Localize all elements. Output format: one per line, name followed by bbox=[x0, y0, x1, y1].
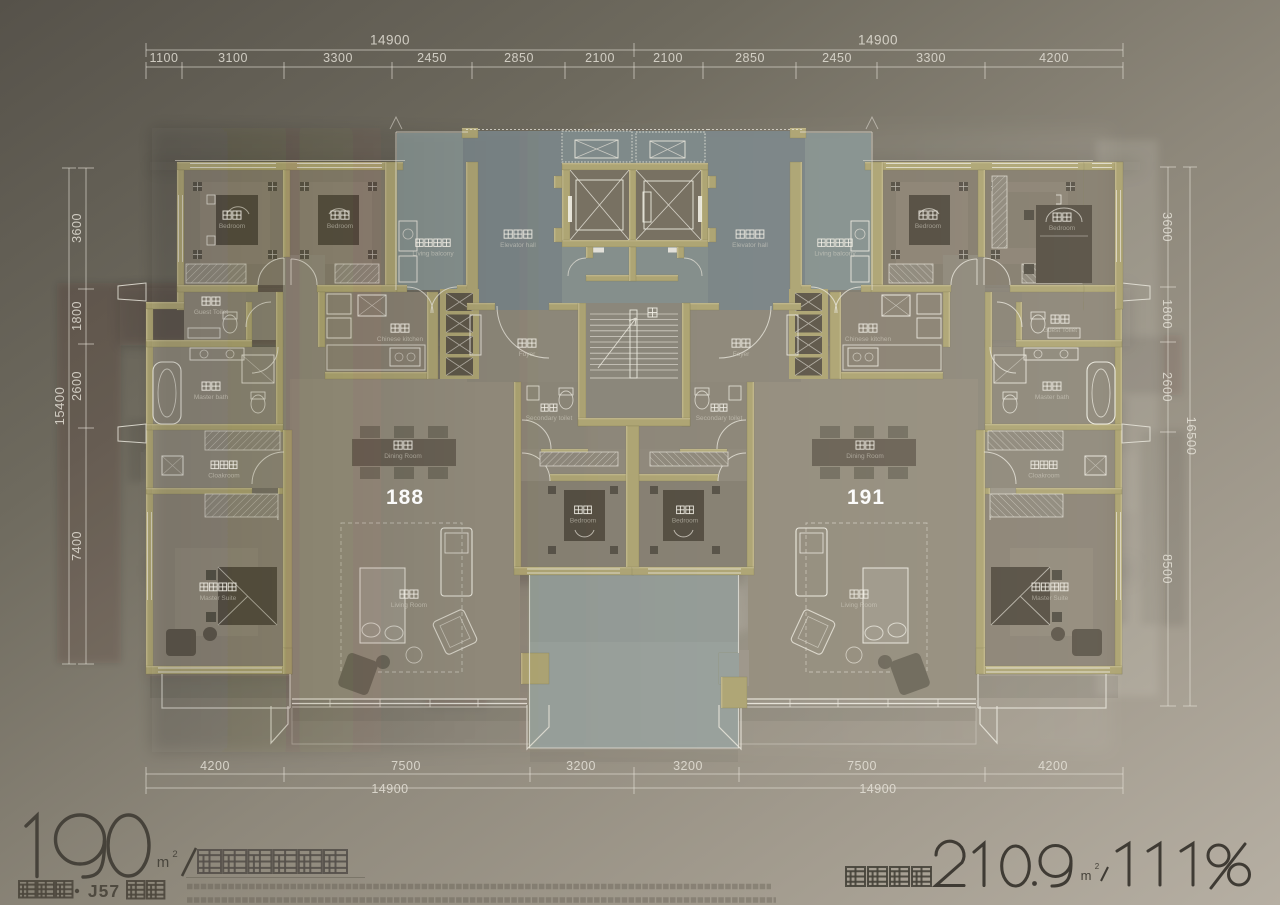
svg-text:Living balcony: Living balcony bbox=[814, 250, 856, 257]
svg-text:Living Room: Living Room bbox=[391, 602, 427, 609]
svg-text:Guest Toilet: Guest Toilet bbox=[194, 309, 228, 316]
svg-text:4200: 4200 bbox=[1038, 759, 1068, 773]
svg-text:Bedroom: Bedroom bbox=[915, 223, 941, 230]
svg-text:Bedroom: Bedroom bbox=[219, 223, 245, 230]
svg-text:3600: 3600 bbox=[1160, 212, 1174, 242]
svg-text:1100: 1100 bbox=[150, 51, 179, 65]
svg-text:m: m bbox=[1081, 868, 1092, 883]
svg-text:Cloakroom: Cloakroom bbox=[1028, 473, 1059, 480]
svg-text:Bedroom: Bedroom bbox=[570, 518, 596, 525]
svg-text:Dining Room: Dining Room bbox=[846, 453, 884, 460]
svg-text:Cloakroom: Cloakroom bbox=[208, 473, 239, 480]
svg-text:7400: 7400 bbox=[70, 531, 84, 561]
svg-text:Master bath: Master bath bbox=[1035, 394, 1070, 401]
svg-text:Guest Toilet: Guest Toilet bbox=[1043, 327, 1077, 334]
svg-text:3200: 3200 bbox=[673, 759, 703, 773]
svg-text:Bedroom: Bedroom bbox=[672, 518, 698, 525]
svg-text:14900: 14900 bbox=[371, 782, 408, 796]
svg-text:1800: 1800 bbox=[1160, 299, 1174, 329]
svg-text:4200: 4200 bbox=[1039, 51, 1069, 65]
svg-text:Elevator hall: Elevator hall bbox=[500, 242, 536, 249]
svg-text:Master bath: Master bath bbox=[194, 394, 229, 401]
svg-text:3200: 3200 bbox=[566, 759, 596, 773]
svg-text:2100: 2100 bbox=[585, 51, 615, 65]
svg-text:2450: 2450 bbox=[417, 51, 447, 65]
svg-text:2100: 2100 bbox=[653, 51, 683, 65]
svg-text:15400: 15400 bbox=[52, 387, 67, 426]
svg-text:16500: 16500 bbox=[1184, 417, 1199, 456]
svg-text:14900: 14900 bbox=[370, 33, 410, 48]
svg-text:3300: 3300 bbox=[916, 51, 946, 65]
svg-text:Master Suite: Master Suite bbox=[1032, 595, 1069, 602]
svg-text:3600: 3600 bbox=[70, 213, 84, 243]
svg-text:Master Suite: Master Suite bbox=[200, 595, 237, 602]
svg-text:4200: 4200 bbox=[200, 759, 230, 773]
svg-text:1800: 1800 bbox=[70, 301, 84, 331]
svg-text:14900: 14900 bbox=[859, 782, 896, 796]
svg-text:J57: J57 bbox=[88, 881, 120, 901]
svg-text:3100: 3100 bbox=[218, 51, 248, 65]
svg-text:191: 191 bbox=[847, 486, 885, 509]
svg-text:2850: 2850 bbox=[735, 51, 765, 65]
svg-text:Elevator hall: Elevator hall bbox=[732, 242, 768, 249]
svg-text:2600: 2600 bbox=[70, 371, 84, 401]
svg-text:3300: 3300 bbox=[323, 51, 353, 65]
svg-text:Dining Room: Dining Room bbox=[384, 453, 422, 460]
svg-text:2: 2 bbox=[1095, 862, 1100, 871]
svg-text:Bedroom: Bedroom bbox=[327, 223, 353, 230]
svg-text:Living balcony: Living balcony bbox=[412, 250, 454, 257]
svg-text:Bedroom: Bedroom bbox=[1049, 225, 1075, 232]
svg-text:Secondary toilet: Secondary toilet bbox=[696, 415, 743, 422]
svg-text:Living Room: Living Room bbox=[841, 602, 877, 609]
svg-text:Chinese kitchen: Chinese kitchen bbox=[377, 336, 424, 343]
svg-text:Foyer: Foyer bbox=[519, 351, 536, 358]
svg-text:m: m bbox=[157, 854, 170, 871]
svg-text:14900: 14900 bbox=[858, 33, 898, 48]
svg-text:Chinese kitchen: Chinese kitchen bbox=[845, 336, 892, 343]
svg-text:2600: 2600 bbox=[1160, 372, 1174, 402]
svg-text:2850: 2850 bbox=[504, 51, 534, 65]
svg-text:188: 188 bbox=[386, 486, 424, 509]
svg-text:2: 2 bbox=[172, 849, 177, 860]
svg-text:Secondary toilet: Secondary toilet bbox=[526, 415, 573, 422]
svg-text:7500: 7500 bbox=[391, 759, 421, 773]
svg-text:Foyer: Foyer bbox=[733, 351, 750, 358]
svg-text:7500: 7500 bbox=[847, 759, 877, 773]
svg-text:2450: 2450 bbox=[822, 51, 852, 65]
svg-text:8500: 8500 bbox=[1160, 554, 1174, 584]
